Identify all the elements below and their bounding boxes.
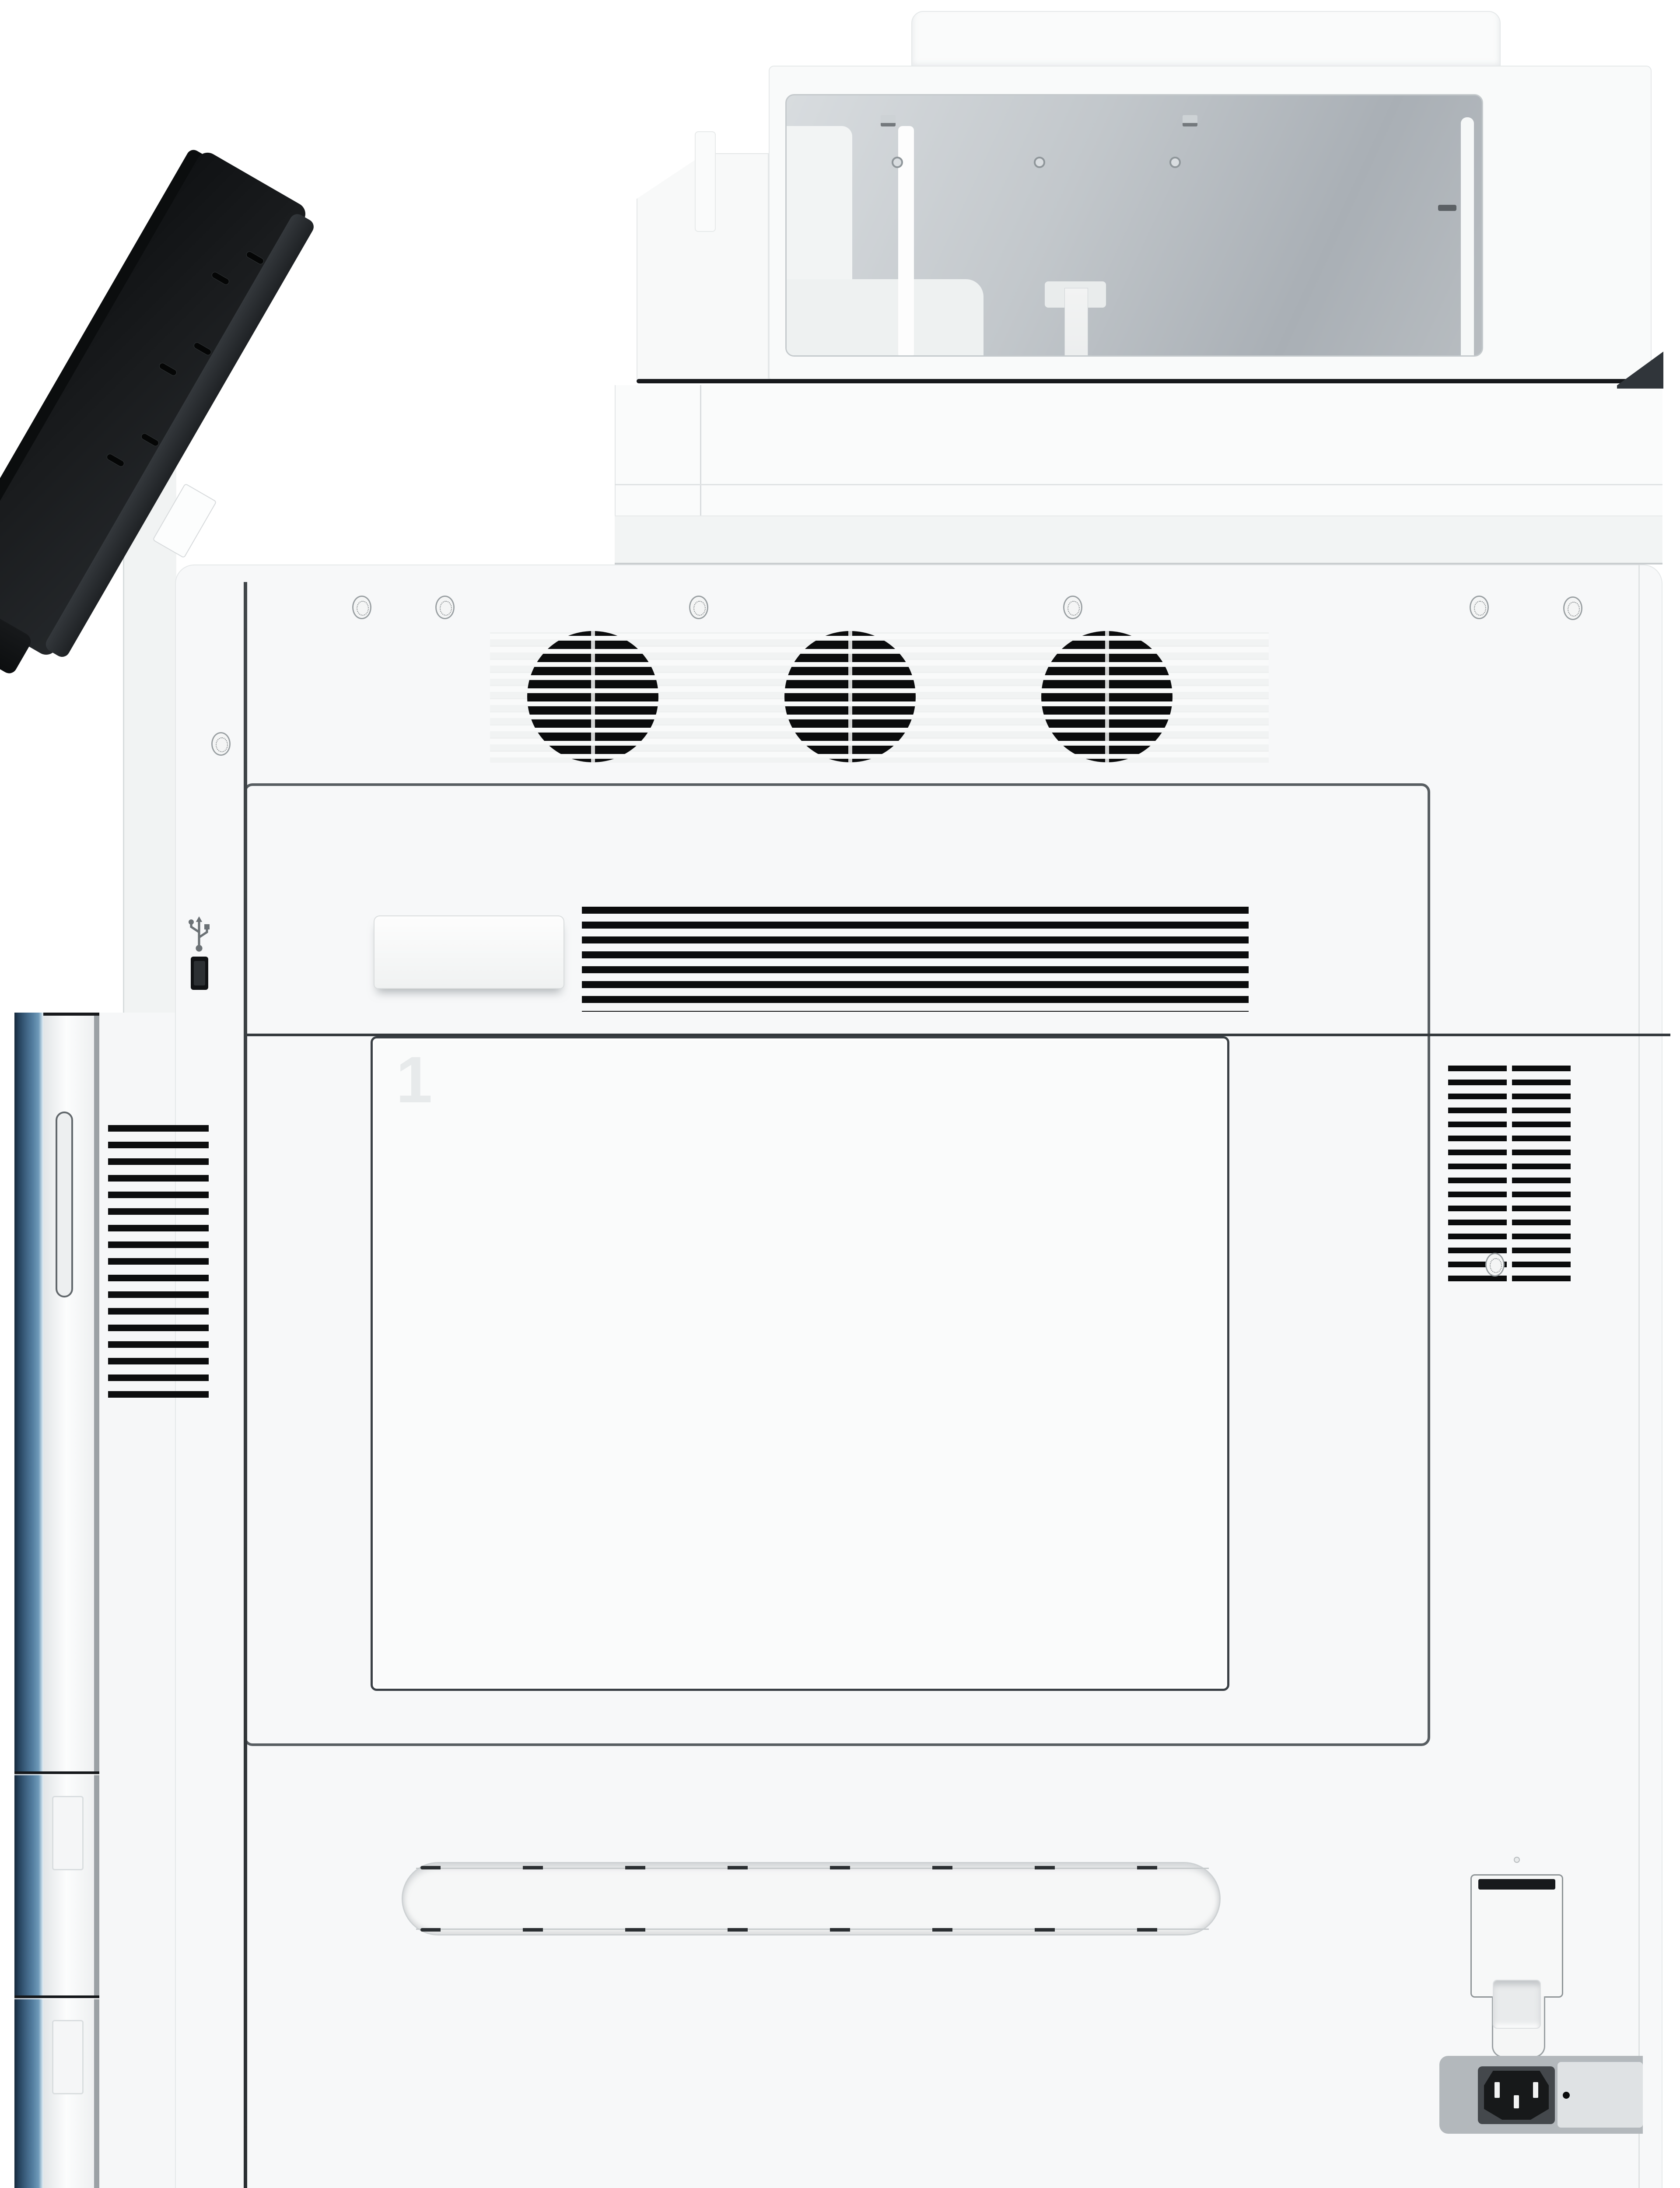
torx-screw [435,596,455,619]
usb-icon [182,915,217,953]
tray-divider [14,1771,99,1774]
fan-opening [784,631,916,762]
scanner-lower-seam [615,484,1662,485]
recessed-square [1493,1980,1541,2029]
cover-plate-slot [1478,1879,1555,1890]
scanner-base-strip [615,515,1662,565]
control-panel [39,144,372,731]
feeder-clip [881,115,896,126]
torx-screw [1563,596,1582,620]
power-recess-inner [1557,2062,1643,2128]
power-socket-housing [1478,2066,1555,2124]
power-pin [1494,2082,1500,2098]
control-panel-vent-slot [105,452,126,468]
recessed-handle-slot [402,1862,1221,1936]
paper-tray-edge-segment [14,1013,99,1771]
feeder-screw [892,157,903,168]
door-latch-plate [374,915,564,989]
fan-opening [527,631,658,762]
power-pin [1514,2095,1519,2108]
door-number-label: 1 [396,1047,432,1112]
feeder-guide-base [787,279,983,357]
slot-ticks-top [420,1866,1204,1869]
scanner-band [615,385,1662,515]
printer-rear-photo: 1 [0,0,1680,2188]
usb-port [191,957,208,990]
right-vent-grille [1448,1066,1571,1290]
power-inlet-recess [1439,2056,1643,2134]
left-vent-grille [108,1125,209,1407]
right-column-seam [1638,565,1640,2188]
tray-emboss-square [52,2020,84,2094]
feeder-top-cover [911,11,1501,70]
feeder-guide-right [1461,117,1474,357]
torx-screw [352,596,371,619]
control-panel-vent-slot [192,341,213,357]
feeder-side-tab [695,131,716,232]
tray-blue-edge [14,1013,43,1771]
slot-ticks-bottom [420,1928,1204,1932]
control-panel-back [0,148,309,659]
tray-blue-edge [14,1771,43,1995]
torx-screw [211,732,231,756]
fan-vent-panel [490,632,1269,763]
paper-tray-edge-segment [14,1995,99,2188]
feeder-screw [1034,157,1045,168]
control-panel-vent-slot [158,361,178,377]
rear-access-door [371,1036,1229,1691]
control-panel-vent-slot [210,271,231,286]
power-pin [1533,2082,1538,2098]
left-column-seam [244,582,247,2188]
small-screw [1514,1857,1520,1863]
tray-blue-edge [14,1995,43,2188]
feeder-cavity [785,94,1483,357]
tray-divider [14,1995,99,1998]
top-louver-vents [582,907,1249,1012]
control-panel-vent-slot [245,250,265,266]
torx-screw [689,596,708,619]
feeder-bottom-seam [637,379,1638,383]
torx-screw [1470,596,1489,619]
paper-tray-edge-segment [14,1771,99,1995]
feeder-vent-slot [1438,205,1456,211]
paper-tray-stack [14,1013,99,2188]
cable-cover-plate [1470,1874,1563,1998]
torx-screw [1063,596,1082,619]
scanner-seam [700,385,701,515]
torx-screw [1485,1253,1505,1276]
control-panel-vent-slot [140,432,160,447]
tray-emboss-square [52,1796,84,1870]
feeder-clip [1183,115,1197,126]
fan-opening [1041,631,1172,762]
power-indicator-dot [1563,2092,1570,2099]
feeder-screw [1169,157,1181,168]
feeder-latch-tongue [1064,288,1088,357]
